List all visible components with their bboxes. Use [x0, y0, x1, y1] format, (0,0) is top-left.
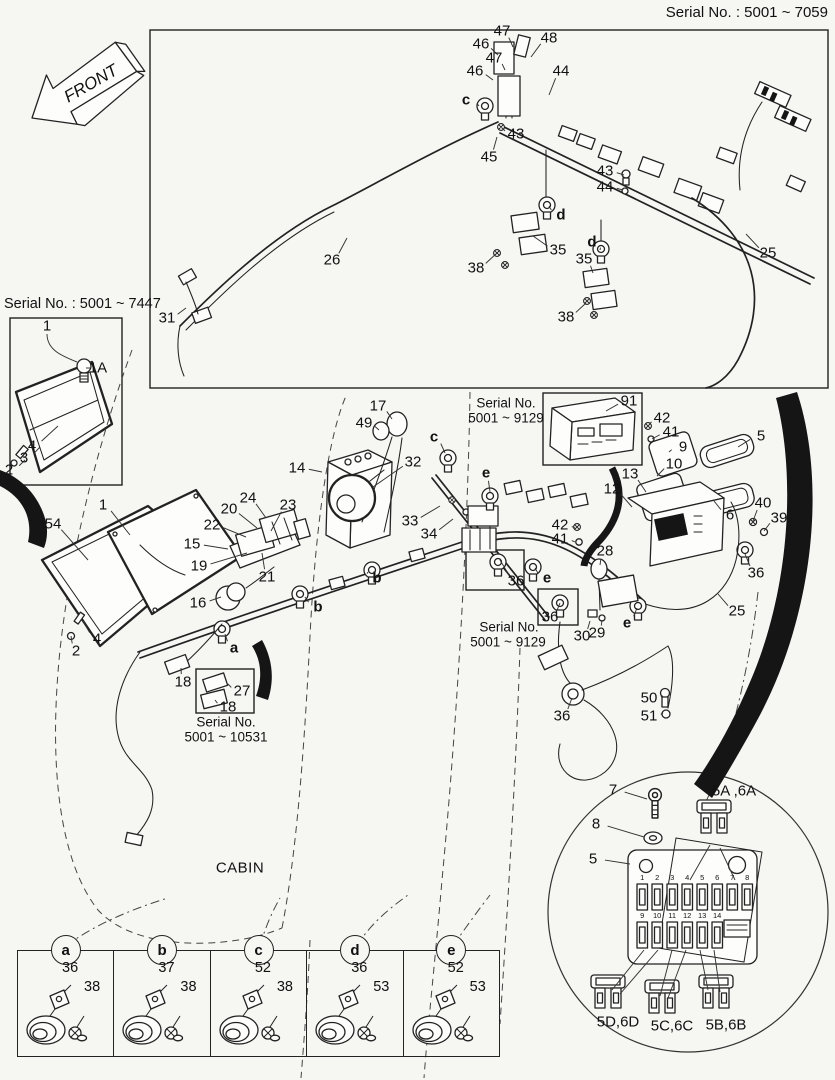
callout-24: 24	[240, 491, 257, 506]
callout-e: e	[623, 616, 631, 631]
callout-41: 41	[663, 425, 680, 440]
callout-1: 1	[43, 319, 51, 334]
callout-4: 4	[28, 439, 36, 454]
callout-38: 38	[468, 261, 485, 276]
callout-5c6c: 5C,6C	[651, 1019, 694, 1034]
legend-cell-d: d3653	[307, 951, 403, 1056]
callout-b: b	[313, 600, 322, 615]
leader-lines	[0, 0, 835, 1080]
callout-12: 12	[604, 482, 621, 497]
legend-cell-b: b3738	[114, 951, 210, 1056]
callout-a: a	[230, 641, 238, 656]
callout-32: 32	[405, 455, 422, 470]
callout-49: 49	[356, 416, 373, 431]
callout-20: 20	[221, 502, 238, 517]
callout-40: 40	[755, 496, 772, 511]
callout-47: 47	[494, 24, 511, 39]
legend-part-number: 36	[351, 960, 367, 976]
callout-1a: 1A	[89, 361, 107, 376]
callout-36: 36	[554, 709, 571, 724]
legend-cell-e: e5253	[404, 951, 499, 1056]
callout-c: c	[430, 430, 438, 445]
callout-25: 25	[760, 246, 777, 261]
callout-18: 18	[175, 675, 192, 690]
callout-41: 41	[552, 532, 569, 547]
callout-46: 46	[467, 64, 484, 79]
callout-29: 29	[589, 626, 606, 641]
callout-17: 17	[370, 399, 387, 414]
callout-33: 33	[402, 514, 419, 529]
callout-8: 8	[592, 817, 600, 832]
callout-cabin: CABIN	[216, 861, 264, 876]
callout-50019129: 5001 ~ 9129	[468, 411, 543, 425]
callout-16: 16	[190, 596, 207, 611]
callout-e: e	[543, 571, 551, 586]
callout-2: 2	[72, 644, 80, 659]
callout-36: 36	[542, 610, 559, 625]
callout-39: 39	[771, 511, 788, 526]
wiring-diagram-page: FRONT	[0, 0, 835, 1080]
callout-serialno: Serial No.	[476, 396, 535, 410]
callout-5: 5	[589, 852, 597, 867]
callout-45: 45	[481, 150, 498, 165]
callout-22: 22	[204, 518, 221, 533]
callout-15: 15	[184, 537, 201, 552]
callout-43: 43	[508, 127, 525, 142]
callout-18: 18	[220, 700, 237, 715]
callout-5b6b: 5B,6B	[706, 1018, 747, 1033]
callout-9: 9	[679, 440, 687, 455]
callout-5d6d: 5D,6D	[597, 1015, 640, 1030]
callout-23: 23	[280, 498, 297, 513]
callout-serialno: Serial No.	[196, 715, 255, 729]
callout-5: 5	[757, 429, 765, 444]
callout-51: 51	[641, 709, 658, 724]
callout-25: 25	[729, 604, 746, 619]
horn-bracket-icon	[406, 980, 498, 1054]
callout-e: e	[482, 466, 490, 481]
callout-b: b	[372, 571, 381, 586]
callout-500110531: 5001 ~ 10531	[185, 730, 268, 744]
horn-bracket-icon	[116, 980, 208, 1054]
horn-bracket-icon	[20, 980, 112, 1054]
callout-d: d	[587, 235, 596, 250]
legend-part-number: 52	[448, 960, 464, 976]
callout-5a6a: 5A ,6A	[712, 784, 756, 799]
callout-35: 35	[576, 252, 593, 267]
callout-14: 14	[289, 461, 306, 476]
serial-header-left-box: Serial No. : 5001 ~ 7447	[4, 296, 161, 312]
callout-4: 4	[93, 632, 101, 647]
callout-44: 44	[553, 64, 570, 79]
callout-19: 19	[191, 559, 208, 574]
callout-6: 6	[726, 508, 734, 523]
callout-38: 38	[558, 310, 575, 325]
callout-d: d	[556, 208, 565, 223]
horn-bracket-icon	[309, 980, 401, 1054]
callout-26: 26	[324, 253, 341, 268]
legend-table: a3638 b3738 c5238	[17, 950, 500, 1057]
legend-cell-c: c5238	[211, 951, 307, 1056]
callout-36: 36	[748, 566, 765, 581]
callout-50019129: 5001 ~ 9129	[470, 635, 545, 649]
callout-34: 34	[421, 527, 438, 542]
callout-28: 28	[597, 544, 614, 559]
callout-7: 7	[609, 783, 617, 798]
callout-10: 10	[666, 457, 683, 472]
horn-bracket-icon	[213, 980, 305, 1054]
callout-48: 48	[541, 31, 558, 46]
callout-31: 31	[159, 311, 176, 326]
legend-part-number: 37	[158, 960, 174, 976]
callout-36: 36	[508, 574, 525, 589]
callout-13: 13	[622, 467, 639, 482]
serial-header-top-right: Serial No. : 5001 ~ 7059	[666, 4, 828, 21]
legend-part-number: 36	[62, 960, 78, 976]
callout-43: 43	[597, 164, 614, 179]
callout-3: 3	[20, 451, 28, 466]
legend-part-number: 52	[255, 960, 271, 976]
legend-cell-a: a3638	[18, 951, 114, 1056]
callout-27: 27	[234, 684, 251, 699]
callout-54: 54	[45, 517, 62, 532]
callout-2: 2	[5, 463, 13, 478]
callout-serialno: Serial No.	[479, 620, 538, 634]
callout-35: 35	[550, 243, 567, 258]
callout-c: c	[462, 93, 470, 108]
callout-44: 44	[597, 180, 614, 195]
callout-47: 47	[486, 51, 503, 66]
callout-21: 21	[259, 570, 276, 585]
callout-50: 50	[641, 691, 658, 706]
callout-1: 1	[99, 498, 107, 513]
callout-91: 91	[621, 394, 638, 409]
